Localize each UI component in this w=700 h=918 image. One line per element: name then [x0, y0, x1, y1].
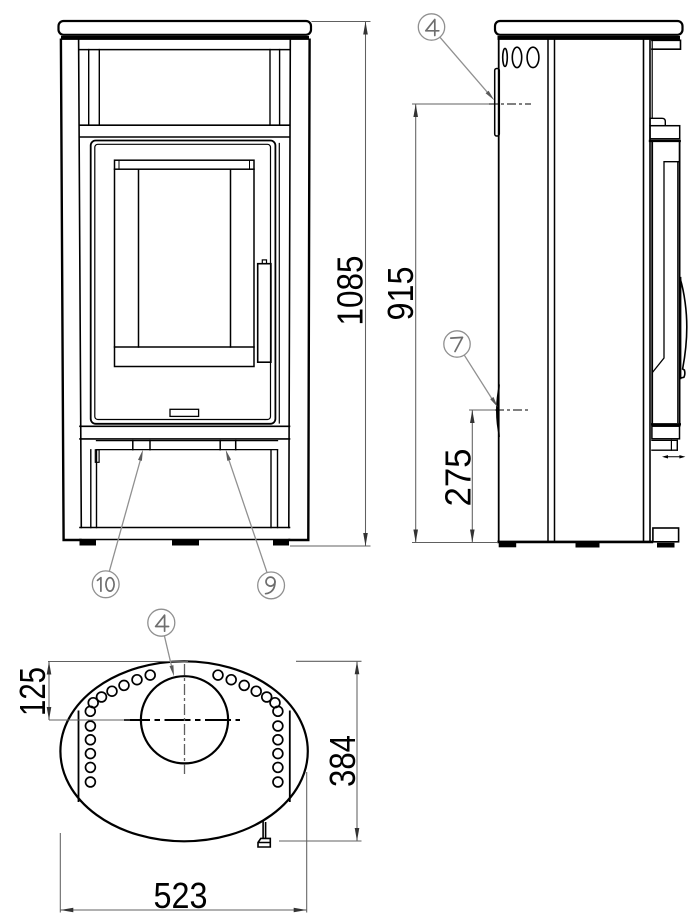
svg-text:523: 523 [154, 875, 208, 916]
svg-text:915: 915 [380, 267, 421, 321]
svg-text:275: 275 [437, 449, 478, 507]
svg-text:384: 384 [322, 735, 363, 787]
svg-text:125: 125 [12, 667, 53, 716]
svg-text:1085: 1085 [330, 256, 371, 326]
